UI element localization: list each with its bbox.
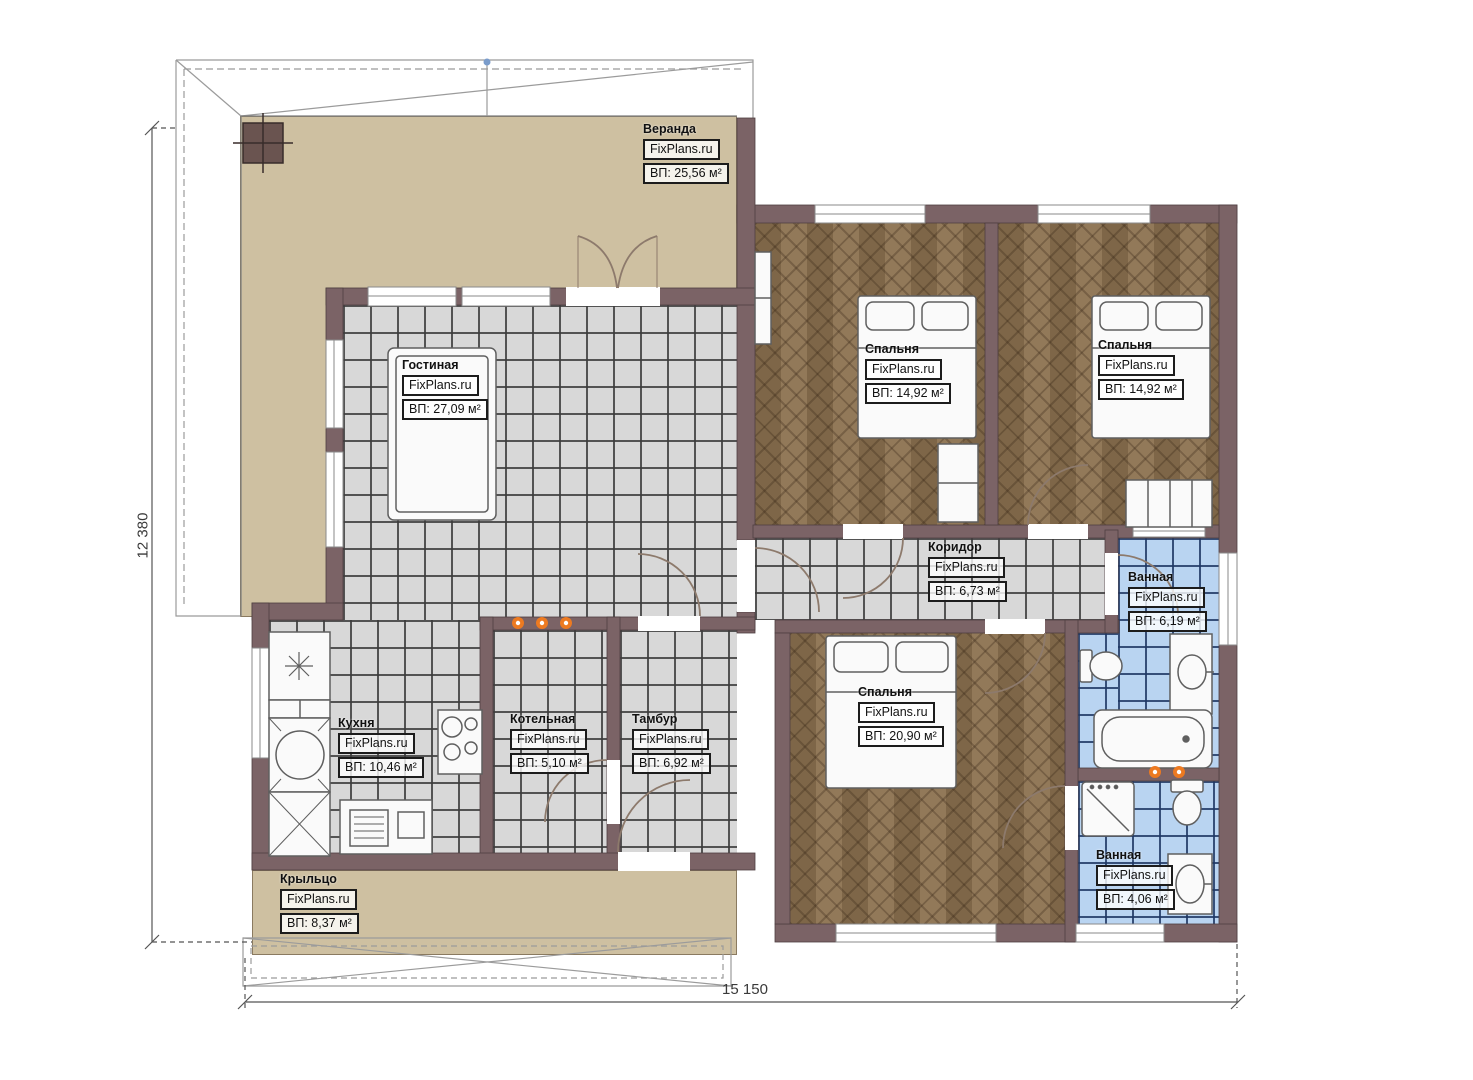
toilet-icon (1171, 780, 1203, 825)
watermark-badge: FixPlans.ru (1096, 865, 1173, 886)
dimension-width-label: 15 150 (690, 981, 800, 998)
bathtub-icon (1094, 710, 1212, 768)
room-area: ВП: 14,92 м² (865, 383, 951, 404)
room-label-bathroom-1: Ванная FixPlans.ru ВП: 6,19 м² (1128, 570, 1207, 632)
dishwasher-icon (340, 800, 432, 854)
plan-structure (0, 0, 1473, 1080)
watermark-badge: FixPlans.ru (632, 729, 709, 750)
watermark-badge: FixPlans.ru (402, 375, 479, 396)
watermark-badge: FixPlans.ru (338, 733, 415, 754)
room-name: Спальня (865, 342, 919, 356)
room-name: Спальня (1098, 338, 1152, 352)
watermark-badge: FixPlans.ru (865, 359, 942, 380)
toilet-icon (1080, 650, 1122, 682)
room-name: Котельная (510, 712, 575, 726)
floor-plan: Веранда FixPlans.ru ВП: 25,56 м² Гостина… (0, 0, 1473, 1080)
room-label-kitchen: Кухня FixPlans.ru ВП: 10,46 м² (338, 716, 424, 778)
survey-point-icon (484, 59, 491, 66)
room-label-bedroom-1: Спальня FixPlans.ru ВП: 14,92 м² (865, 342, 951, 404)
kitchen-sink-icon (269, 718, 330, 792)
shower-icon (1082, 782, 1134, 836)
sink-icon (1170, 634, 1214, 714)
room-label-corridor: Коридор FixPlans.ru ВП: 6,73 м² (928, 540, 1007, 602)
watermark-badge: FixPlans.ru (280, 889, 357, 910)
watermark-badge: FixPlans.ru (1128, 587, 1205, 608)
room-name: Спальня (858, 685, 912, 699)
room-name: Крыльцо (280, 872, 337, 886)
room-label-bathroom-2: Ванная FixPlans.ru ВП: 4,06 м² (1096, 848, 1175, 910)
wardrobe-icon (938, 444, 978, 522)
room-area: ВП: 6,19 м² (1128, 611, 1207, 632)
watermark-badge: FixPlans.ru (1098, 355, 1175, 376)
wardrobe-icon (755, 252, 771, 344)
room-label-living: Гостиная FixPlans.ru ВП: 27,09 м² (402, 358, 488, 420)
room-name: Тамбур (632, 712, 677, 726)
column-marker (233, 113, 293, 173)
watermark-badge: FixPlans.ru (510, 729, 587, 750)
room-area: ВП: 25,56 м² (643, 163, 729, 184)
room-area: ВП: 10,46 м² (338, 757, 424, 778)
wardrobe-icon (1126, 480, 1212, 527)
room-label-porch: Крыльцо FixPlans.ru ВП: 8,37 м² (280, 872, 359, 934)
fridge-icon (269, 792, 330, 856)
room-area: ВП: 27,09 м² (402, 399, 488, 420)
room-name: Коридор (928, 540, 982, 554)
room-area: ВП: 20,90 м² (858, 726, 944, 747)
room-area: ВП: 4,06 м² (1096, 889, 1175, 910)
room-label-boiler: Котельная FixPlans.ru ВП: 5,10 м² (510, 712, 589, 774)
watermark-badge: FixPlans.ru (858, 702, 935, 723)
room-name: Кухня (338, 716, 375, 730)
room-area: ВП: 6,73 м² (928, 581, 1007, 602)
room-label-bedroom-3: Спальня FixPlans.ru ВП: 20,90 м² (858, 685, 944, 747)
room-name: Веранда (643, 122, 696, 136)
dimension-height-label: 12 380 (135, 481, 152, 591)
stove-icon (438, 710, 482, 774)
room-area: ВП: 5,10 м² (510, 753, 589, 774)
room-area: ВП: 14,92 м² (1098, 379, 1184, 400)
room-area: ВП: 8,37 м² (280, 913, 359, 934)
watermark-badge: FixPlans.ru (643, 139, 720, 160)
kitchen-counter (269, 700, 330, 718)
room-name: Гостиная (402, 358, 459, 372)
room-label-veranda: Веранда FixPlans.ru ВП: 25,56 м² (643, 122, 729, 184)
room-label-vestibule: Тамбур FixPlans.ru ВП: 6,92 м² (632, 712, 711, 774)
room-name: Ванная (1096, 848, 1141, 862)
room-label-bedroom-2: Спальня FixPlans.ru ВП: 14,92 м² (1098, 338, 1184, 400)
kitchen-fan-icon (269, 632, 330, 700)
watermark-badge: FixPlans.ru (928, 557, 1005, 578)
room-area: ВП: 6,92 м² (632, 753, 711, 774)
room-name: Ванная (1128, 570, 1173, 584)
